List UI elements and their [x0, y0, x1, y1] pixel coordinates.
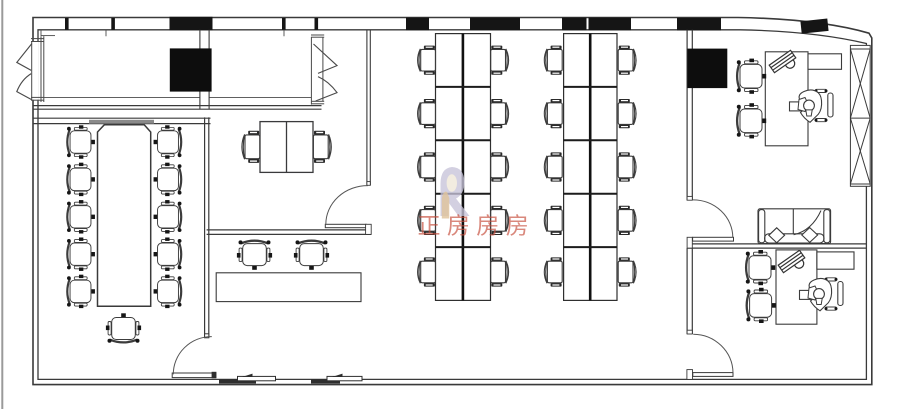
svg-text:正房房房: 正房房房 — [418, 213, 536, 239]
